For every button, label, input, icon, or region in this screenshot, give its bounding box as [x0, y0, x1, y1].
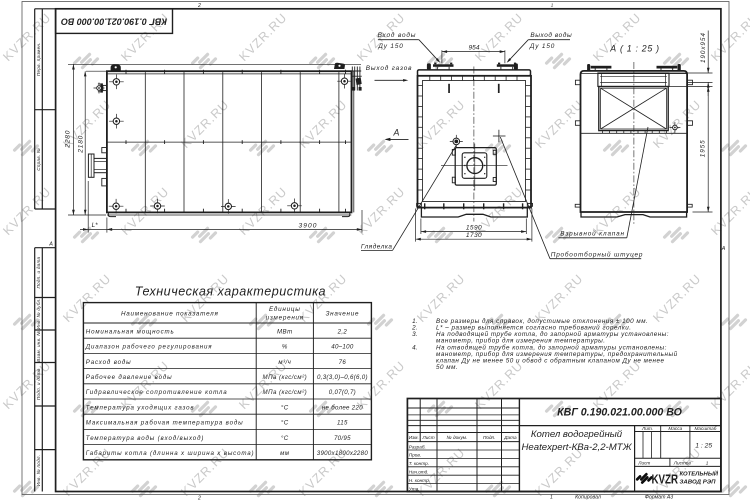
svg-text:°С: °С [281, 404, 289, 411]
svg-text:KVZR: KVZR [652, 472, 679, 487]
svg-text:Масштаб: Масштаб [694, 426, 716, 431]
svg-text:№ докум.: № докум. [447, 435, 468, 440]
svg-text:А ( 1 : 25 ): А ( 1 : 25 ) [609, 44, 659, 54]
svg-text:1 : 25: 1 : 25 [695, 443, 712, 450]
svg-text:Вход воды: Вход воды [378, 31, 417, 39]
svg-text:Гляделка: Гляделка [361, 242, 393, 250]
svg-text:Лит.: Лит. [641, 426, 653, 431]
svg-text:190х954: 190х954 [700, 32, 707, 63]
svg-text:Расход воды: Расход воды [86, 359, 132, 366]
svg-text:2,2: 2,2 [337, 328, 348, 335]
svg-text:115: 115 [337, 420, 348, 427]
svg-text:Наименование показателя: Наименование показателя [121, 310, 219, 317]
svg-text:Единицы: Единицы [269, 305, 301, 313]
svg-text:0,3(3,0)–0,6(6,0): 0,3(3,0)–0,6(6,0) [317, 374, 368, 381]
svg-text:2: 2 [197, 3, 201, 9]
svg-text:Утв.: Утв. [409, 486, 420, 491]
svg-text:А: А [48, 242, 53, 248]
svg-text:50 мм.: 50 мм. [436, 364, 458, 371]
svg-text:Выход воды: Выход воды [530, 31, 572, 39]
svg-text:Подп.: Подп. [483, 435, 495, 440]
svg-text:L*: L* [92, 222, 99, 229]
svg-text:Значение: Значение [326, 311, 360, 318]
svg-text:1590: 1590 [466, 224, 482, 231]
svg-text:МВт: МВт [277, 328, 293, 335]
svg-text:Дата: Дата [503, 435, 517, 440]
svg-text:Формат А3: Формат А3 [645, 494, 673, 500]
svg-text:°С: °С [281, 435, 289, 442]
svg-text:2180: 2180 [78, 135, 85, 154]
svg-text:Нач.отд.: Нач.отд. [409, 470, 429, 475]
svg-text:Разраб.: Разраб. [409, 444, 426, 449]
svg-text:Т. контр.: Т. контр. [409, 461, 429, 466]
svg-text:1: 1 [706, 460, 709, 465]
svg-text:Температура уходящих газов: Температура уходящих газов [86, 404, 195, 411]
svg-text:Подп. и дата: Подп. и дата [36, 257, 41, 289]
svg-text:954: 954 [468, 45, 479, 52]
svg-text:МПа (кгс/см²): МПа (кгс/см²) [263, 389, 308, 396]
svg-text:1: 1 [550, 494, 553, 500]
svg-text:Лист: Лист [422, 435, 435, 440]
svg-text:3900: 3900 [298, 222, 317, 229]
svg-text:не более 220: не более 220 [322, 404, 363, 411]
svg-text:измерения: измерения [266, 315, 304, 322]
svg-text:Масса: Масса [668, 426, 682, 431]
svg-text:Инв. № подл.: Инв. № подл. [36, 455, 41, 487]
svg-text:Копировал: Копировал [575, 494, 601, 500]
svg-text:3900х1800х2280: 3900х1800х2280 [317, 450, 369, 457]
svg-text:Инв. № дубл.: Инв. № дубл. [36, 298, 41, 329]
svg-text:Лист: Лист [637, 460, 650, 465]
svg-text:40–100: 40–100 [331, 344, 354, 351]
svg-text:Габариты котла (длинна х ширин: Габариты котла (длинна х ширина х высота… [86, 450, 255, 457]
svg-text:Н. контр.: Н. контр. [409, 478, 430, 483]
svg-text:Максимальная рабочая температу: Максимальная рабочая температура воды [86, 420, 244, 427]
svg-text:Подп. и дата: Подп. и дата [36, 368, 41, 400]
svg-text:КОТЕЛЬНЫЙ: КОТЕЛЬНЫЙ [680, 469, 719, 477]
svg-text:Рабочее давление воды: Рабочее давление воды [86, 374, 173, 381]
svg-text:КВГ 0.190.021.00.000 ВО: КВГ 0.190.021.00.000 ВО [557, 406, 682, 418]
svg-text:76: 76 [339, 359, 347, 366]
svg-text:А: А [721, 246, 726, 252]
svg-text:Пров.: Пров. [409, 453, 421, 458]
svg-text:Справ. №: Справ. № [36, 148, 41, 171]
svg-text:Котел водогрейный: Котел водогрейный [531, 429, 623, 440]
svg-text:Температура воды (вход/выход): Температура воды (вход/выход) [86, 435, 204, 442]
svg-text:%: % [282, 344, 288, 351]
svg-text:Техническая характеристика: Техническая характеристика [135, 284, 326, 298]
svg-text:Листов: Листов [673, 460, 692, 465]
svg-text:0,07(0,7): 0,07(0,7) [329, 389, 356, 396]
svg-text:70/95: 70/95 [334, 435, 351, 442]
svg-text:Диапазон рабочего регулировани: Диапазон рабочего регулирования [85, 344, 213, 351]
svg-text:КВГ 0.190.021.00.000 ВО: КВГ 0.190.021.00.000 ВО [61, 16, 167, 26]
svg-text:Гидравлическое сопротивление к: Гидравлическое сопротивление котла [86, 389, 228, 396]
svg-text:Взрывной клапан: Взрывной клапан [560, 229, 625, 237]
svg-text:мм: мм [280, 450, 290, 457]
svg-text:3.: 3. [412, 331, 417, 338]
svg-text:Изм.: Изм. [409, 435, 419, 440]
svg-text:Номинальная мощность: Номинальная мощность [86, 328, 175, 335]
svg-text:Ду 150: Ду 150 [377, 43, 403, 50]
svg-text:2: 2 [197, 495, 201, 500]
svg-text:МПа (кгс/см²): МПа (кгс/см²) [263, 374, 308, 381]
svg-text:Перв. примен.: Перв. примен. [36, 42, 41, 76]
svg-text:4.: 4. [412, 344, 417, 351]
svg-text:Взам. инв. №: Взам. инв. № [36, 330, 41, 361]
svg-text:1730: 1730 [466, 232, 482, 239]
svg-text:ЗАВОД РЭП: ЗАВОД РЭП [680, 479, 717, 485]
svg-text:Пробоотборный штуцер: Пробоотборный штуцер [551, 250, 643, 258]
svg-text:1955: 1955 [700, 139, 707, 157]
svg-text:1: 1 [551, 3, 554, 8]
svg-text:А: А [392, 128, 399, 138]
svg-text:Heatexpert-КВа-2,2-МТЖ: Heatexpert-КВа-2,2-МТЖ [522, 442, 633, 453]
svg-text:Ду 150: Ду 150 [529, 43, 555, 50]
svg-text:м³/ч: м³/ч [278, 359, 291, 366]
svg-text:Выход газов: Выход газов [366, 64, 413, 72]
svg-text:°С: °С [281, 420, 289, 427]
svg-text:2280: 2280 [65, 130, 72, 149]
svg-text:клапан Ду не менее 50 и обвод: клапан Ду не менее 50 и обвод с обратным… [436, 357, 664, 365]
